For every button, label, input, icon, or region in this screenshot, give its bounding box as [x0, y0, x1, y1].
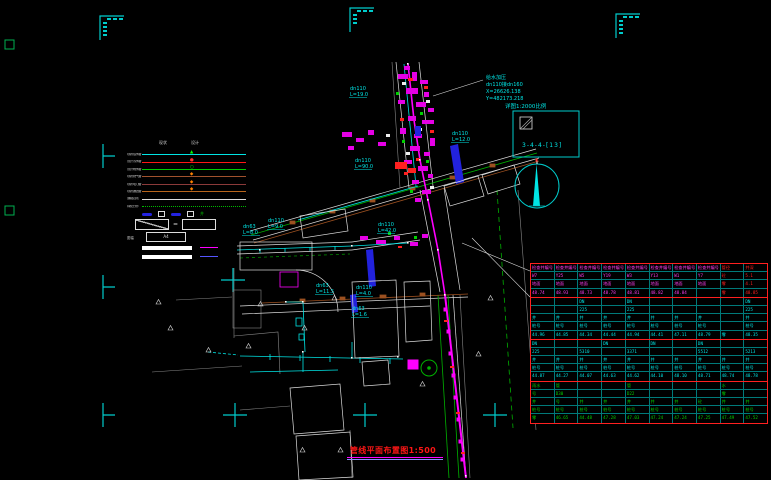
- legend-marker-icon: ◆: [190, 173, 193, 178]
- legend-row-label: 设计污水管: [127, 160, 142, 163]
- table-row: DNDNDNDN: [531, 340, 767, 348]
- table-cell: 井: [531, 314, 555, 321]
- table-row: 井井井井井井井井井: [531, 314, 767, 322]
- table-row: 44.9644.8544.3444.4444.9444.4147.1148.79…: [531, 331, 767, 339]
- table-cell: [650, 306, 674, 313]
- table-cell: [673, 298, 697, 305]
- legend-column-headers: 现状 设计: [127, 141, 249, 151]
- legend-row: 现状电力管◆: [127, 181, 249, 188]
- table-cell: 井: [602, 314, 626, 321]
- table-cell: 桩号: [626, 322, 650, 329]
- legend-row-label: 现状给水管: [127, 153, 142, 156]
- table-cell: 225: [531, 348, 555, 355]
- table-cell: 桩号: [673, 322, 697, 329]
- table-cell: 桩号: [602, 406, 626, 413]
- callout-line4: Y=482173.218: [485, 96, 523, 102]
- table-cell: Y13: [650, 272, 674, 279]
- table-cell: 砼: [721, 272, 745, 279]
- table-cell: 48.74: [721, 372, 745, 380]
- table-cell: [555, 306, 579, 313]
- table-row: 地面地面地面地面地面地面地面地面零4.1: [531, 280, 767, 288]
- table-cell: 井: [531, 356, 555, 363]
- table-row: 44.8744.2744.0744.6344.6244.1048.1048.71…: [531, 372, 767, 380]
- table-cell: [578, 390, 602, 397]
- table-cell: 井: [555, 356, 579, 363]
- table-cell: 零: [531, 414, 555, 422]
- table-cell: 井: [673, 398, 697, 405]
- table-cell: 48.71: [697, 372, 721, 380]
- table-cell: 井: [602, 398, 626, 405]
- table-cell: [650, 348, 674, 355]
- building-outlines: [240, 165, 520, 480]
- table-cell: [673, 340, 697, 347]
- table-cell: 桩号: [531, 364, 555, 371]
- table-cell: 44.27: [555, 372, 579, 380]
- table-cell: 井: [744, 314, 767, 321]
- table-cell: [578, 382, 602, 389]
- table-cell: 48.84: [673, 289, 697, 297]
- table-cell: 井: [602, 356, 626, 363]
- legend-symbols-row: 井: [142, 210, 249, 218]
- table-cell: 检查井编号: [602, 264, 626, 271]
- legend-row: 现状通信管◆: [127, 188, 249, 195]
- legend-line-swatch: [142, 206, 246, 207]
- table-cell: 井: [650, 356, 674, 363]
- junction-box-icon: [187, 211, 194, 217]
- table-cell: 44.41: [650, 331, 674, 339]
- table-cell: [650, 298, 674, 305]
- blue-line-swatch: [200, 256, 218, 257]
- legend-row: 绿化分界: [127, 203, 249, 210]
- table-cell: 225: [578, 306, 602, 313]
- table-cell: [744, 340, 767, 347]
- table-cell: 井: [626, 398, 650, 405]
- sheet-size-box: A4: [146, 232, 186, 242]
- table-cell: 48.74: [531, 289, 555, 297]
- edge-marker-squares: [5, 40, 14, 215]
- table-cell: 47.24: [673, 414, 697, 422]
- table-cell: 井: [744, 356, 767, 363]
- scale-bar: [142, 255, 192, 259]
- table-cell: 225: [744, 306, 767, 313]
- table-cell: 地面: [697, 280, 721, 287]
- table-cell: 48.35: [744, 331, 767, 339]
- table-cell: 44.94: [626, 331, 650, 339]
- elevation-table: 检查井编号检查井编号检查井编号检查井编号检查井编号检查井编号检查井编号检查井编号…: [530, 263, 768, 424]
- table-cell: 零: [721, 289, 745, 297]
- table-row: 2255310337155125213: [531, 348, 767, 356]
- table-cell: 号: [531, 390, 555, 397]
- table-cell: 桩号: [578, 364, 602, 371]
- table-cell: 桩号: [697, 322, 721, 329]
- table-cell: 44.07: [578, 372, 602, 380]
- legend-marker-icon: ◆: [190, 188, 193, 193]
- frame-corner-microtext: [103, 10, 639, 36]
- table-cell: 桩号: [531, 322, 555, 329]
- table-cell: [673, 382, 697, 389]
- table-cell: 47.11: [673, 331, 697, 339]
- parcel-lines: [152, 62, 536, 478]
- storm-lines: [240, 153, 537, 478]
- equals-sign: =: [173, 222, 178, 228]
- table-cell: 桩号: [721, 364, 745, 371]
- table-row: 井号井井井井井砼井井: [531, 398, 767, 406]
- table-cell: [531, 306, 555, 313]
- legend-scalebar-row1: [142, 243, 249, 252]
- table-cell: 管: [555, 382, 579, 389]
- table-cell: 井: [578, 314, 602, 321]
- table-cell: 48.81: [626, 289, 650, 297]
- table-row: 零46.6544.4847.2847.0347.2447.2447.2547.4…: [531, 414, 767, 422]
- table-cell: 检查井编号: [578, 264, 602, 271]
- table-cell: 井: [650, 398, 674, 405]
- table-cell: [697, 390, 721, 397]
- table-cell: [721, 314, 745, 321]
- table-cell: 47.28: [602, 414, 626, 422]
- legend-line-swatch: ●: [142, 162, 246, 163]
- table-row: W7Y25W5Y19W3Y13W1Y7砼5.1: [531, 272, 767, 280]
- table-cell: 44.87: [531, 372, 555, 380]
- table-cell: W3: [626, 272, 650, 279]
- coordinate-callout: 给水加压 dn110接dn160 X=26626.138 Y=482173.21…: [485, 74, 523, 102]
- pipe-label: L=1.6: [352, 312, 367, 318]
- table-cell: Y25: [555, 272, 579, 279]
- table-group: 雨水管管水号D30D22零井号井井井井井砼井井桩号桩号桩号桩号桩号桩号桩号桩号桩…: [531, 382, 767, 423]
- detail-scale-label: 详图1:2000比例: [505, 102, 547, 110]
- legend-row-label: 现状燃气管: [127, 175, 142, 178]
- table-row: 桩号桩号桩号桩号桩号桩号桩号桩号桩号桩号: [531, 406, 767, 414]
- table-cell: [673, 390, 697, 397]
- table-cell: [697, 298, 721, 305]
- table-cell: [626, 340, 650, 347]
- table-cell: 5310: [578, 348, 602, 355]
- table-cell: [721, 298, 745, 305]
- pipe-dim-labels: dn63 L=8.0 dn110 L=9.0 dn110 L=90.0 dn11…: [242, 86, 470, 318]
- table-cell: 桩号: [650, 322, 674, 329]
- table-cell: 4.1: [744, 280, 767, 287]
- table-cell: [721, 306, 745, 313]
- legend-row-label: 道路边线: [127, 197, 142, 200]
- sheet-label: 图幅: [127, 235, 142, 240]
- table-cell: 井: [578, 398, 602, 405]
- table-cell: 48.73: [578, 289, 602, 297]
- table-cell: [602, 306, 626, 313]
- table-cell: DN: [578, 298, 602, 305]
- table-cell: [531, 298, 555, 305]
- table-cell: 雨水: [531, 382, 555, 389]
- table-cell: [697, 306, 721, 313]
- legend-row-label: 现状电力管: [127, 183, 142, 186]
- table-cell: 44.10: [650, 372, 674, 380]
- table-cell: 管径: [721, 264, 745, 271]
- table-cell: 48.78: [602, 289, 626, 297]
- table-cell: [721, 340, 745, 347]
- legend-marker-icon: ▲: [190, 151, 193, 156]
- table-cell: 桩号: [626, 406, 650, 413]
- legend: 现状 设计 现状给水管▲设计污水管●设计雨水管○现状燃气管◆现状电力管◆现状通信…: [127, 141, 249, 261]
- table-cell: 44.62: [626, 372, 650, 380]
- table-cell: 桩号: [673, 406, 697, 413]
- table-cell: 井: [650, 314, 674, 321]
- legend-marker-icon: ○: [190, 166, 194, 171]
- legend-row: 现状燃气管◆: [127, 173, 249, 180]
- legend-line-swatch: ○: [142, 169, 246, 170]
- table-cell: 砼: [697, 398, 721, 405]
- table-cell: 225: [626, 306, 650, 313]
- legend-scalebar-row2: [142, 252, 249, 261]
- table-cell: 47.49: [721, 414, 745, 422]
- table-cell: DN: [650, 340, 674, 347]
- table-group: 检查井编号检查井编号检查井编号检查井编号检查井编号检查井编号检查井编号检查井编号…: [531, 264, 767, 298]
- table-cell: 井: [626, 314, 650, 321]
- table-cell: 5213: [744, 348, 767, 355]
- pipe-label: L=90.0: [355, 164, 373, 170]
- legend-row-label: 设计雨水管: [127, 168, 142, 171]
- table-cell: 桩号: [650, 406, 674, 413]
- table-cell: [721, 322, 745, 329]
- table-cell: 桩号: [744, 322, 767, 329]
- table-cell: 井: [673, 314, 697, 321]
- legend-lines: 现状给水管▲设计污水管●设计雨水管○现状燃气管◆现状电力管◆现状通信管◆道路边线…: [127, 151, 249, 210]
- table-cell: 桩号: [578, 406, 602, 413]
- table-cell: 5512: [697, 348, 721, 355]
- table-cell: 44.63: [602, 372, 626, 380]
- callout-line1: 给水加压: [486, 74, 506, 81]
- pipe-label: L=4.0: [356, 291, 371, 297]
- legend-row-label: 绿化分界: [127, 205, 142, 208]
- pipe-label: L=42.0: [378, 228, 396, 234]
- table-cell: 桩号: [531, 406, 555, 413]
- table-cell: 47.52: [744, 414, 767, 422]
- table-group: DNDNDN225225225井井井井井井井井井桩号桩号桩号桩号桩号桩号桩号桩号…: [531, 298, 767, 340]
- table-row: 井井井井井井井井井井: [531, 356, 767, 364]
- table-row: 检查井编号检查井编号检查井编号检查井编号检查井编号检查井编号检查井编号检查井编号…: [531, 264, 767, 272]
- table-cell: 检查井编号: [673, 264, 697, 271]
- detail-box: 详图1:2000比例 3-4-4-[13]: [505, 102, 579, 157]
- pipe-label: L=9.0: [268, 224, 283, 230]
- table-cell: W1: [673, 272, 697, 279]
- table-cell: [555, 340, 579, 347]
- legend-sheet-row: 图幅 A4: [127, 231, 249, 243]
- legend-col-header: 设计: [191, 141, 199, 145]
- table-cell: [697, 289, 721, 297]
- table-cell: [673, 348, 697, 355]
- title-underline-blue: [347, 459, 443, 460]
- table-cell: 48.10: [673, 372, 697, 380]
- table-cell: 桩号: [697, 406, 721, 413]
- table-cell: 零: [721, 331, 745, 339]
- table-cell: 48.93: [555, 289, 579, 297]
- legend-row: 设计雨水管○: [127, 166, 249, 173]
- legend-row: 设计污水管●: [127, 158, 249, 165]
- table-cell: [650, 390, 674, 397]
- table-cell: 48.85: [744, 289, 767, 297]
- table-cell: 48.82: [650, 289, 674, 297]
- table-row: DNDNDN: [531, 298, 767, 306]
- table-cell: [602, 298, 626, 305]
- table-cell: 5.1: [744, 272, 767, 279]
- table-cell: 井: [555, 314, 579, 321]
- table-row: 48.7448.9348.7348.7848.8148.8248.84零48.8…: [531, 289, 767, 297]
- detail-ref-label: 3-4-4-[13]: [522, 142, 562, 149]
- annotation-cluster-green: [388, 92, 429, 239]
- table-cell: 47.03: [626, 414, 650, 422]
- table-cell: 桩号: [578, 322, 602, 329]
- table-cell: 管: [626, 382, 650, 389]
- legend-marker-icon: ◆: [190, 181, 193, 186]
- table-cell: 47.25: [697, 414, 721, 422]
- utility-lines-brown: [254, 161, 539, 303]
- table-cell: [721, 348, 745, 355]
- table-cell: 井: [697, 356, 721, 363]
- table-cell: 44.44: [602, 331, 626, 339]
- table-row: 225225225: [531, 306, 767, 314]
- table-cell: 桩号: [721, 406, 745, 413]
- pipe-label: L=12.0: [452, 137, 470, 143]
- table-group: DNDNDNDN2255310337155125213井井井井井井井井井井桩号桩…: [531, 340, 767, 382]
- table-cell: 44.85: [555, 331, 579, 339]
- table-cell: 零: [721, 280, 745, 287]
- cad-drawing-canvas: 详图1:2000比例 3-4-4-[13] 给水加压 dn110接dn160 X…: [0, 0, 771, 480]
- table-cell: [578, 340, 602, 347]
- table-cell: 检查井编号: [697, 264, 721, 271]
- empty-well-swatch: [182, 219, 216, 230]
- table-cell: 桩号: [744, 364, 767, 371]
- table-cell: [602, 348, 626, 355]
- legend-marker-icon: ●: [190, 159, 194, 164]
- table-cell: 桩号: [744, 406, 767, 413]
- table-cell: 桩号: [697, 364, 721, 371]
- table-cell: DN: [626, 298, 650, 305]
- table-cell: 检查井编号: [531, 264, 555, 271]
- table-cell: [744, 390, 767, 397]
- table-cell: 井: [626, 356, 650, 363]
- cable-duct-icon: [142, 213, 152, 216]
- legend-row: 道路边线: [127, 195, 249, 202]
- table-cell: DN: [531, 340, 555, 347]
- pipe-label: L=19.0: [350, 92, 368, 98]
- table-cell: 检查井编号: [555, 264, 579, 271]
- table-cell: 井: [697, 314, 721, 321]
- table-cell: 地面: [531, 280, 555, 287]
- table-cell: 48.79: [697, 331, 721, 339]
- table-cell: 地面: [673, 280, 697, 287]
- legend-valve-row: =: [135, 218, 249, 231]
- legend-line-swatch: ◆: [142, 191, 246, 192]
- table-cell: 桩号: [650, 364, 674, 371]
- table-cell: 桩号: [673, 364, 697, 371]
- table-cell: 3371: [626, 348, 650, 355]
- table-cell: 地面: [650, 280, 674, 287]
- table-cell: [744, 382, 767, 389]
- junction-box-icon: [158, 211, 165, 217]
- legend-row-label: 现状通信管: [127, 190, 142, 193]
- table-cell: 水: [721, 382, 745, 389]
- table-cell: 零: [721, 390, 745, 397]
- pipe-label: L=11.5: [316, 289, 334, 295]
- table-cell: 井深: [744, 264, 767, 271]
- legend-row: 现状给水管▲: [127, 151, 249, 158]
- table-cell: W7: [531, 272, 555, 279]
- table-cell: 地面: [578, 280, 602, 287]
- table-cell: 44.96: [531, 331, 555, 339]
- table-row: 号D30D22零: [531, 390, 767, 398]
- table-cell: [602, 390, 626, 397]
- table-cell: W5: [578, 272, 602, 279]
- legend-symbol-glyph: 井: [200, 212, 204, 216]
- table-cell: 地面: [602, 280, 626, 287]
- table-cell: 检查井编号: [626, 264, 650, 271]
- table-row: 桩号桩号桩号桩号桩号桩号桩号桩号桩号桩号: [531, 364, 767, 372]
- table-cell: 桩号: [555, 364, 579, 371]
- table-row: 桩号桩号桩号桩号桩号桩号桩号桩号桩号: [531, 322, 767, 330]
- table-cell: 井: [578, 356, 602, 363]
- valve-well-swatch: [135, 219, 169, 230]
- table-row: 雨水管管水: [531, 382, 767, 390]
- table-cell: 46.65: [555, 414, 579, 422]
- table-cell: [555, 348, 579, 355]
- table-cell: [650, 382, 674, 389]
- drawing-title: 管线平面布置图1:500: [335, 445, 451, 456]
- table-cell: 井: [531, 398, 555, 405]
- table-cell: 井: [744, 398, 767, 405]
- tree-symbol: [421, 360, 437, 376]
- table-cell: 地面: [555, 280, 579, 287]
- table-cell: 井: [673, 356, 697, 363]
- table-cell: 桩号: [555, 406, 579, 413]
- table-cell: 号: [555, 398, 579, 405]
- table-cell: 桩号: [626, 364, 650, 371]
- table-cell: 48.78: [744, 372, 767, 380]
- legend-line-swatch: ▲: [142, 154, 246, 155]
- callout-line2: dn110接dn160: [486, 81, 523, 88]
- table-cell: 44.34: [578, 331, 602, 339]
- title-underline-magenta: [347, 457, 443, 458]
- table-cell: 井: [721, 398, 745, 405]
- table-cell: D22: [626, 390, 650, 397]
- legend-line-swatch: [142, 199, 246, 200]
- cable-duct-icon: [171, 213, 181, 216]
- table-cell: [555, 298, 579, 305]
- table-cell: [673, 306, 697, 313]
- legend-line-swatch: ◆: [142, 184, 246, 185]
- magenta-line-swatch: [200, 247, 218, 248]
- table-cell: 桩号: [602, 322, 626, 329]
- table-cell: [697, 382, 721, 389]
- legend-line-swatch: ◆: [142, 176, 246, 177]
- table-cell: 检查井编号: [650, 264, 674, 271]
- callout-line3: X=26626.138: [486, 89, 521, 95]
- table-cell: 47.24: [650, 414, 674, 422]
- table-cell: 桩号: [555, 322, 579, 329]
- legend-col-header: 现状: [159, 141, 167, 145]
- table-cell: DN: [602, 340, 626, 347]
- table-cell: D30: [555, 390, 579, 397]
- table-cell: 44.48: [578, 414, 602, 422]
- table-cell: 井: [721, 356, 745, 363]
- table-cell: [602, 382, 626, 389]
- table-cell: DN: [744, 298, 767, 305]
- table-cell: DN: [697, 340, 721, 347]
- table-cell: Y7: [697, 272, 721, 279]
- table-cell: Y19: [602, 272, 626, 279]
- table-cell: 地面: [626, 280, 650, 287]
- table-cell: 桩号: [602, 364, 626, 371]
- scale-bar: [142, 246, 192, 250]
